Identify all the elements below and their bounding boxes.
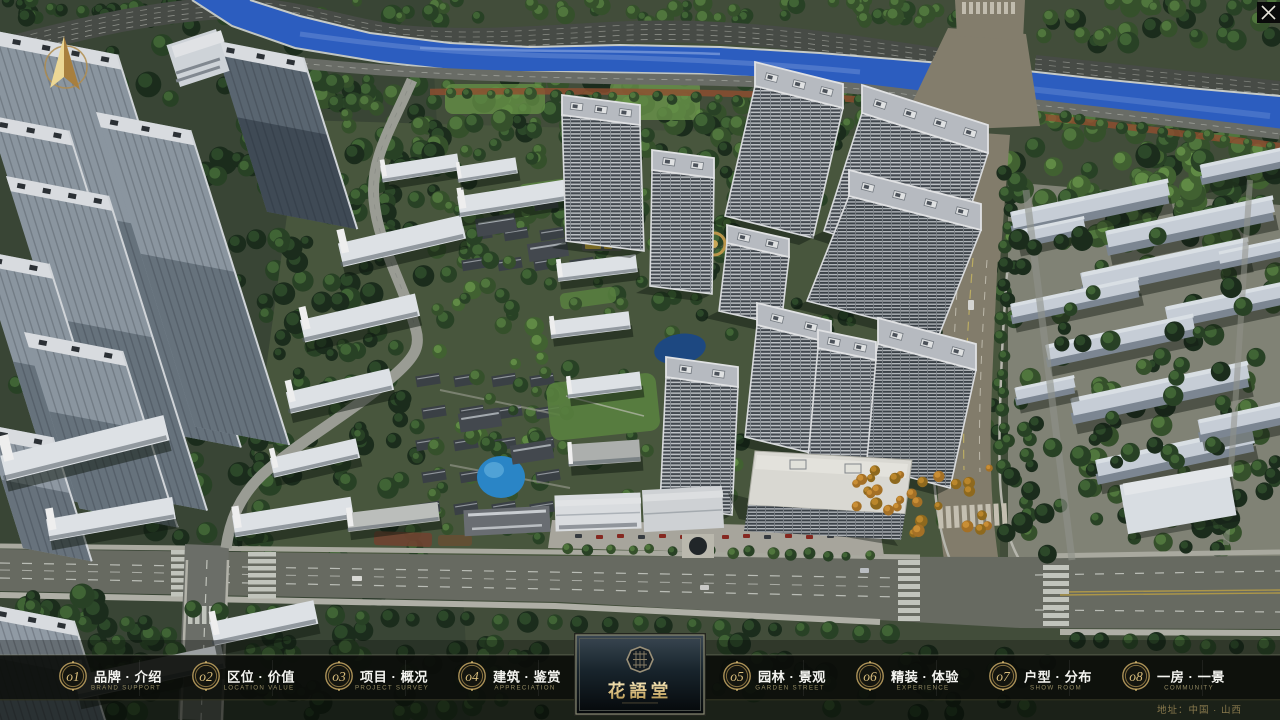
svg-text:o7: o7 (996, 669, 1011, 684)
svg-text:园林 · 景观: 园林 · 景观 (758, 669, 826, 685)
svg-text:o5: o5 (730, 669, 744, 684)
svg-text:品牌 · 介绍: 品牌 · 介绍 (94, 669, 162, 685)
svg-text:o3: o3 (332, 669, 346, 684)
svg-text:一房 · 一景: 一房 · 一景 (1157, 669, 1225, 685)
svg-text:o8: o8 (1129, 669, 1143, 684)
svg-text:o6: o6 (863, 669, 877, 684)
svg-text:GARDEN STREET: GARDEN STREET (755, 685, 825, 692)
svg-text:BRAND SUPPORT: BRAND SUPPORT (91, 685, 161, 692)
svg-text:APPRECIATION: APPRECIATION (494, 685, 555, 692)
svg-text:精装 · 体验: 精装 · 体验 (891, 669, 959, 685)
svg-text:区位 · 价值: 区位 · 价值 (227, 669, 295, 685)
svg-text:户型 · 分布: 户型 · 分布 (1024, 669, 1092, 685)
svg-text:项目 · 概况: 项目 · 概况 (360, 669, 428, 685)
svg-text:建筑 · 鉴赏: 建筑 · 鉴赏 (493, 669, 561, 685)
svg-text:EXPERIENCE: EXPERIENCE (897, 685, 950, 692)
svg-text:o2: o2 (199, 669, 213, 684)
svg-text:花語堂: 花語堂 (608, 681, 673, 701)
svg-text:o1: o1 (66, 669, 80, 684)
svg-text:LOCATION VALUE: LOCATION VALUE (224, 685, 295, 692)
svg-text:COMMUNITY: COMMUNITY (1164, 685, 1214, 692)
svg-text:PROJECT SURVEY: PROJECT SURVEY (355, 685, 429, 692)
svg-text:SHOW ROOM: SHOW ROOM (1030, 685, 1082, 692)
svg-text:地址：中国 · 山西: 地址：中国 · 山西 (1157, 704, 1242, 716)
svg-text:o4: o4 (465, 669, 479, 684)
